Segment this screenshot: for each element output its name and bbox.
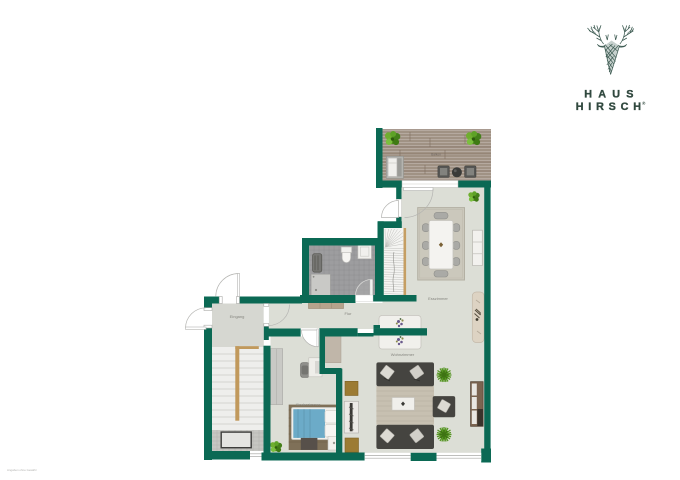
- svg-text:Wohnzimmer: Wohnzimmer: [391, 352, 415, 357]
- svg-text:HAUS: HAUS: [584, 89, 639, 101]
- svg-text:Balkon: Balkon: [431, 152, 441, 156]
- svg-text:Angaben ohne Gewähr: Angaben ohne Gewähr: [7, 468, 37, 472]
- svg-text:HIRSCH: HIRSCH: [576, 101, 646, 113]
- svg-text:Esszimmer: Esszimmer: [428, 296, 448, 301]
- svg-text:Kinderzimmer: Kinderzimmer: [296, 402, 321, 407]
- svg-text:Eingang: Eingang: [230, 314, 245, 319]
- svg-text:Flur: Flur: [345, 311, 353, 316]
